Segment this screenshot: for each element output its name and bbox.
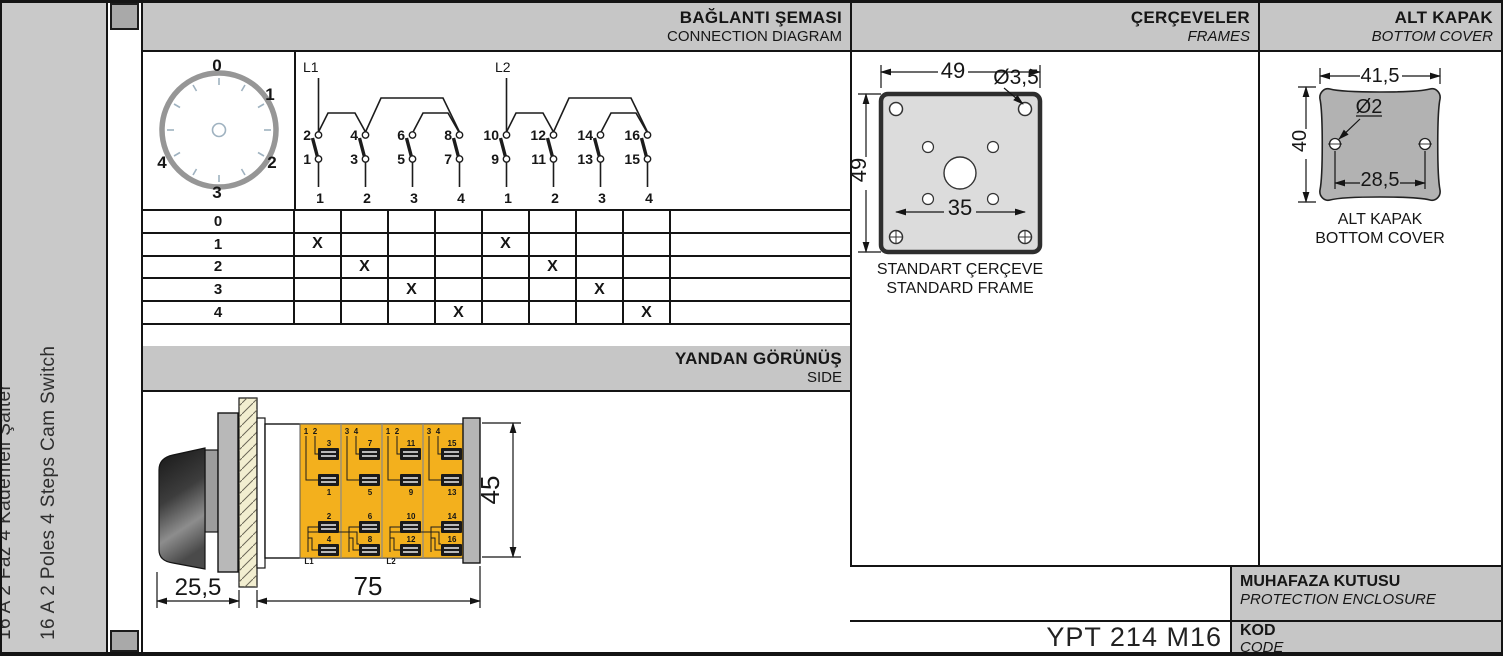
terminal-bottom-4: 7 <box>444 151 452 167</box>
cell: X <box>295 234 342 255</box>
m2-bottom-upper: 6 <box>368 512 373 521</box>
dial-label-0: 0 <box>212 56 221 75</box>
frame-drawing: 49 Ø3,5 49 35 STANDART ÇERÇEVE STANDARD … <box>852 52 1258 312</box>
cell <box>436 234 483 255</box>
cell <box>483 257 530 278</box>
cell <box>342 279 389 300</box>
step-number-3: 3 <box>410 190 418 206</box>
table-row: 1 XX <box>143 234 850 257</box>
code-label-tr: KOD <box>1240 623 1501 640</box>
cell <box>577 234 624 255</box>
frame-caption-tr: STANDART ÇERÇEVE <box>877 261 1043 278</box>
section-header-frames: ÇERÇEVELER FRAMES <box>850 3 1258 52</box>
switch-knob <box>159 448 218 569</box>
cell <box>530 302 577 323</box>
product-title-english: 16 A 2 Poles 4 Steps Cam Switch <box>38 346 60 640</box>
dial-center <box>213 124 226 137</box>
m3-bottom-lower: 12 <box>407 535 416 544</box>
cell <box>577 211 624 232</box>
frames-title-tr: ÇERÇEVELER <box>1131 8 1250 28</box>
terminal-top-6: 12 <box>530 127 546 143</box>
table-row: 3 XX <box>143 279 850 302</box>
step-number-4: 4 <box>457 190 465 206</box>
side-view-drawing: 1 2 3 1 2 4 L1 3 4 7 5 6 8 1 2 11 9 10 1… <box>143 392 850 650</box>
row-label: 3 <box>143 279 295 300</box>
cell <box>577 302 624 323</box>
cell <box>436 211 483 232</box>
binding-mark-top <box>110 3 139 30</box>
cell <box>624 279 671 300</box>
cell <box>389 211 436 232</box>
binding-mark-bottom <box>110 630 139 652</box>
cell: X <box>436 302 483 323</box>
enclosure-label-cell: MUHAFAZA KUTUSU PROTECTION ENCLOSURE <box>1230 565 1501 620</box>
terminal-bottom-1: 1 <box>303 151 311 167</box>
cell: X <box>624 302 671 323</box>
cell <box>389 257 436 278</box>
terminal-bottom-5: 9 <box>491 151 499 167</box>
row-label: 2 <box>143 257 295 278</box>
dim-body-height: 45 <box>475 476 505 505</box>
cell <box>342 302 389 323</box>
step-number-8: 4 <box>645 190 653 206</box>
terminal-bottom-8: 15 <box>624 151 640 167</box>
m1-lower: 1 <box>327 488 332 497</box>
panel-hatch <box>239 398 257 587</box>
cell <box>295 279 342 300</box>
terminal-bottom-3: 5 <box>397 151 405 167</box>
enclosure-label-tr: MUHAFAZA KUTUSU <box>1240 572 1501 591</box>
cell <box>436 279 483 300</box>
connection-title-en: CONNECTION DIAGRAM <box>667 28 842 46</box>
frame-dim-hole: Ø3,5 <box>993 66 1039 89</box>
table-row: 2 XX <box>143 257 850 280</box>
m4-lower: 13 <box>448 488 457 497</box>
row-label: 1 <box>143 234 295 255</box>
m4-bottom-lower: 16 <box>448 535 457 544</box>
m1-step2: 2 <box>313 427 318 436</box>
cell: X <box>530 257 577 278</box>
frames-title-en: FRAMES <box>1187 28 1250 46</box>
cell <box>389 302 436 323</box>
section-header-cover: ALT KAPAK BOTTOM COVER <box>1258 3 1501 52</box>
m3-feed: L2 <box>386 557 396 566</box>
cover-title-en: BOTTOM COVER <box>1372 28 1493 46</box>
dim-knob-depth: 25,5 <box>175 574 222 601</box>
section-header-side: YANDAN GÖRÜNÜŞ SIDE <box>143 346 850 392</box>
cell <box>342 211 389 232</box>
terminal-top-7: 14 <box>577 127 593 143</box>
m1-upper: 3 <box>327 439 332 448</box>
section-header-connection: BAĞLANTI ŞEMASI CONNECTION DIAGRAM <box>143 3 850 52</box>
spacer <box>257 418 265 568</box>
cell <box>295 302 342 323</box>
m4-bottom-upper: 14 <box>448 512 457 521</box>
cell <box>295 211 342 232</box>
m1-feed: L1 <box>304 557 314 566</box>
side-title-en: SIDE <box>807 369 842 387</box>
side-title-tr: YANDAN GÖRÜNÜŞ <box>675 349 842 369</box>
terminal-top-5: 10 <box>483 127 499 143</box>
cell <box>389 234 436 255</box>
dial-label-3: 3 <box>212 183 221 202</box>
cover-title-tr: ALT KAPAK <box>1395 8 1493 28</box>
code-value: YPT 214 M16 <box>1046 622 1222 653</box>
cell <box>342 234 389 255</box>
mounting-plate <box>218 413 238 572</box>
m4-step2: 4 <box>436 427 441 436</box>
row-label: 4 <box>143 302 295 323</box>
cell <box>483 211 530 232</box>
switching-table: 0 1 XX 2 XX 3 XX 4 XX <box>143 209 850 325</box>
code-value-cell: YPT 214 M16 <box>850 620 1234 652</box>
cell: X <box>483 234 530 255</box>
enclosure-value-cell <box>850 565 1234 620</box>
step-number-1: 1 <box>316 190 324 206</box>
cell <box>624 211 671 232</box>
step-numbers: 1 2 3 4 1 2 3 4 <box>316 190 653 206</box>
m3-step1: 1 <box>386 427 391 436</box>
rotary-dial: 0 1 2 3 4 <box>157 56 276 202</box>
cell <box>483 279 530 300</box>
enclosure-label-en: PROTECTION ENCLOSURE <box>1240 591 1501 609</box>
binding-strip <box>108 3 143 652</box>
cell: X <box>577 279 624 300</box>
m1-bottom-lower: 4 <box>327 535 332 544</box>
cover-dim-span: 28,5 <box>1361 169 1400 191</box>
cell: X <box>389 279 436 300</box>
cell <box>530 211 577 232</box>
product-title-turkish: 16 A 2 Faz 4 Kademeli Şalter <box>0 384 16 640</box>
step-number-2: 2 <box>363 190 371 206</box>
terminal-top-8: 16 <box>624 127 640 143</box>
contact-bars <box>313 138 647 157</box>
cell <box>530 234 577 255</box>
cell-spacer <box>671 234 850 255</box>
terminal-numbers: 2 1 4 3 6 5 8 7 10 9 12 11 14 13 16 15 <box>303 127 640 167</box>
frame-dim-height: 49 <box>852 158 871 182</box>
cover-dim-hole: Ø2 <box>1356 96 1383 118</box>
row-label: 0 <box>143 211 295 232</box>
step-number-5: 1 <box>504 190 512 206</box>
frame-shaft-hole <box>944 157 976 189</box>
table-row: 0 <box>143 211 850 234</box>
cell-spacer <box>671 257 850 278</box>
feed-label-l2: L2 <box>495 59 511 75</box>
step-number-6: 2 <box>551 190 559 206</box>
frame-dim-inner: 35 <box>948 195 972 220</box>
cell-spacer <box>671 279 850 300</box>
connection-title-tr: BAĞLANTI ŞEMASI <box>680 8 842 28</box>
m4-upper: 15 <box>448 439 457 448</box>
cover-caption-en: BOTTOM COVER <box>1315 230 1445 247</box>
step-number-7: 3 <box>598 190 606 206</box>
cell-spacer <box>671 211 850 232</box>
knob-base <box>205 450 218 532</box>
cell <box>295 257 342 278</box>
cell <box>624 234 671 255</box>
cell-spacer <box>671 302 850 323</box>
cell <box>483 302 530 323</box>
terminal-bottom-7: 13 <box>577 151 593 167</box>
m2-bottom-lower: 8 <box>368 535 373 544</box>
m2-step1: 3 <box>345 427 350 436</box>
terminal-bottom-2: 3 <box>350 151 358 167</box>
code-label-cell: KOD CODE <box>1230 620 1501 652</box>
m3-lower: 9 <box>409 488 414 497</box>
terminal-top-4: 8 <box>444 127 452 143</box>
terminal-top-2: 4 <box>350 127 358 143</box>
terminal-bottom-6: 11 <box>531 151 546 167</box>
dim-body-length: 75 <box>354 571 383 601</box>
cell <box>577 257 624 278</box>
m3-step2: 2 <box>395 427 400 436</box>
dial-label-2: 2 <box>267 153 276 172</box>
cover-dim-width: 41,5 <box>1361 65 1400 87</box>
table-row: 4 XX <box>143 302 850 325</box>
cover-dim-height: 40 <box>1289 130 1311 152</box>
m2-lower: 5 <box>368 488 373 497</box>
frame-caption-en: STANDARD FRAME <box>886 280 1033 297</box>
dial-label-4: 4 <box>157 153 167 172</box>
m4-step1: 3 <box>427 427 432 436</box>
connection-diagram: 0 1 2 3 4 <box>143 52 850 209</box>
m2-upper: 7 <box>368 439 373 448</box>
feed-label-l1: L1 <box>303 59 319 75</box>
cell <box>436 257 483 278</box>
cover-caption-tr: ALT KAPAK <box>1338 211 1423 228</box>
code-label-en: CODE <box>1240 640 1501 656</box>
sidebar: 16 A 2 Faz 4 Kademeli Şalter 16 A 2 Pole… <box>2 3 108 652</box>
m2-step2: 4 <box>354 427 359 436</box>
cell: X <box>342 257 389 278</box>
m1-step1: 1 <box>304 427 309 436</box>
frame-dim-width: 49 <box>941 58 965 83</box>
m3-upper: 11 <box>407 439 416 448</box>
m1-bottom-upper: 2 <box>327 512 332 521</box>
cell <box>530 279 577 300</box>
terminal-top-1: 2 <box>303 127 311 143</box>
dial-label-1: 1 <box>265 85 274 104</box>
datasheet-page: 16 A 2 Faz 4 Kademeli Şalter 16 A 2 Pole… <box>0 0 1503 656</box>
cover-drawing: 41,5 40 Ø2 28,5 ALT KAPAK BOTTOM COVER <box>1260 52 1501 262</box>
terminal-top-3: 6 <box>397 127 405 143</box>
m3-bottom-upper: 10 <box>407 512 416 521</box>
cell <box>624 257 671 278</box>
